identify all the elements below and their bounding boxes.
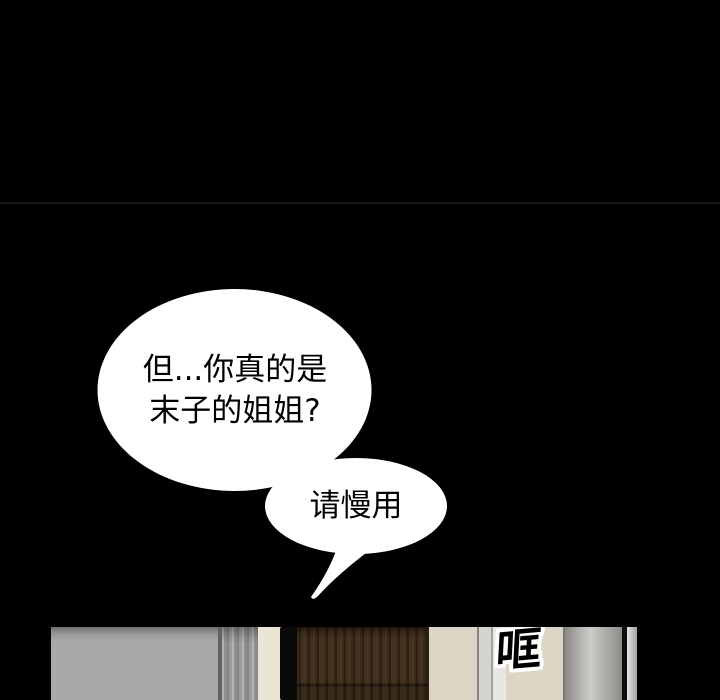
door-hinge-bottom-nub — [284, 627, 291, 700]
question-line-2: 末子的姐姐? — [149, 391, 320, 432]
question-line-1: 但...你真的是 — [143, 350, 328, 391]
reply-bubble-tail — [311, 545, 370, 599]
reply-line-1: 请慢用 — [310, 488, 403, 524]
brushed-pillar — [222, 627, 260, 700]
reply-bubble-text: 请慢用 — [267, 459, 445, 553]
door-edge-strip — [627, 627, 637, 700]
metal-column — [565, 627, 622, 700]
scene-photo: 哐 哐 — [51, 627, 637, 700]
comic-page: 但...你真的是 末子的姐姐? 请慢用 哐 哐 — [0, 0, 720, 700]
gray-wall-panel — [51, 627, 218, 700]
wooden-door — [293, 627, 429, 700]
sfx-text: 哐 哐 — [493, 627, 543, 700]
sliding-frame-strip — [479, 627, 491, 700]
sfx-fill: 哐 — [493, 627, 543, 700]
